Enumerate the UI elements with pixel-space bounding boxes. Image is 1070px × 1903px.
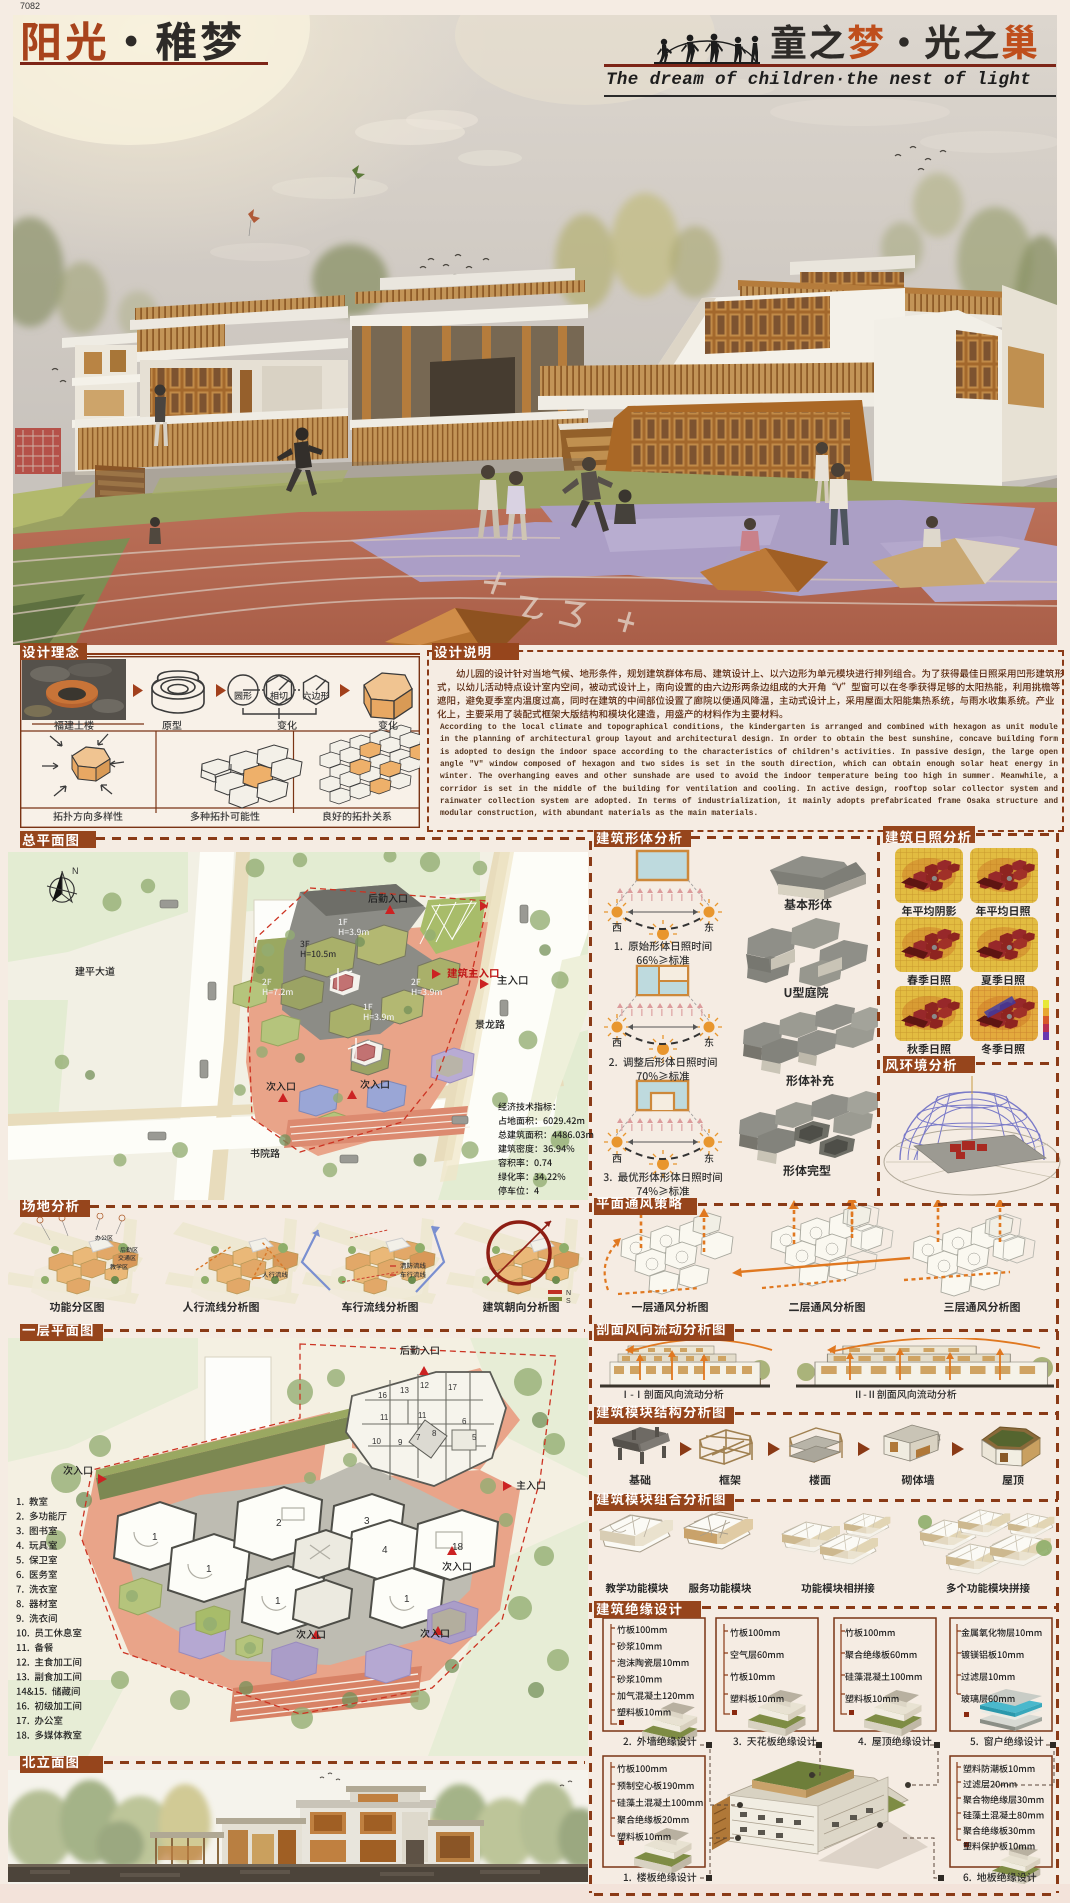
svg-text:8: 8 [432,1429,437,1438]
svg-text:11: 11 [380,1413,389,1422]
svg-text:9: 9 [398,1438,403,1447]
svg-text:2: 2 [276,1518,282,1529]
svg-text:5: 5 [472,1433,477,1442]
svg-text:3: 3 [364,1516,370,1527]
svg-text:S: S [566,1298,571,1305]
svg-text:1: 1 [404,1594,410,1605]
svg-text:10: 10 [372,1437,381,1446]
svg-text:12: 12 [420,1381,429,1390]
svg-text:11: 11 [418,1411,427,1420]
svg-text:1: 1 [206,1564,212,1575]
svg-text:1: 1 [275,1596,281,1607]
svg-text:7: 7 [416,1433,421,1442]
svg-text:1: 1 [152,1532,158,1543]
svg-text:N: N [566,1290,571,1297]
svg-text:16: 16 [378,1391,387,1400]
svg-text:13: 13 [400,1386,409,1395]
svg-text:N: N [72,866,79,876]
svg-text:17: 17 [448,1383,457,1392]
svg-text:6: 6 [462,1417,467,1426]
svg-text:4: 4 [382,1545,388,1556]
